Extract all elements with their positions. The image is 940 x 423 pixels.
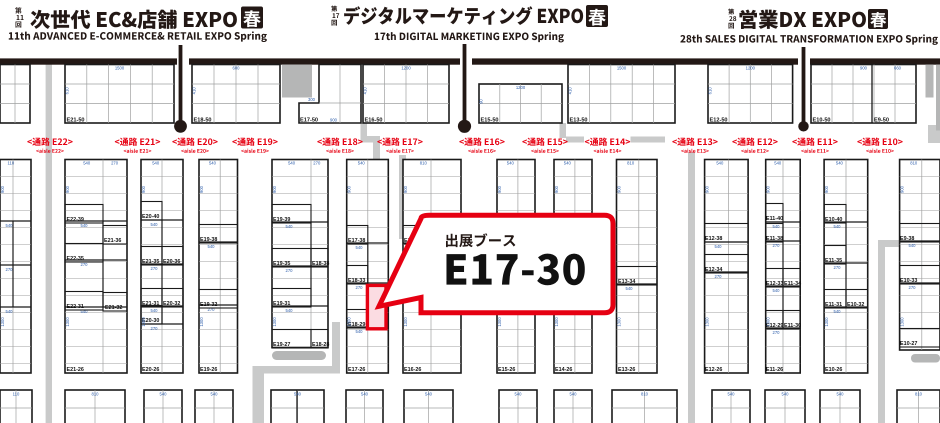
svg-text:540: 540 <box>834 309 842 314</box>
svg-text:900: 900 <box>497 185 502 193</box>
svg-text:540: 540 <box>208 244 216 249</box>
svg-text:E18-50: E18-50 <box>194 118 212 124</box>
svg-text:E11-38: E11-38 <box>766 236 783 242</box>
svg-text:E11-34: E11-34 <box>784 281 801 287</box>
svg-text:E21-31: E21-31 <box>142 301 159 307</box>
svg-text:900: 900 <box>705 185 710 193</box>
svg-text:540: 540 <box>288 161 296 166</box>
svg-text:1200: 1200 <box>746 66 756 71</box>
svg-text:270: 270 <box>773 330 781 335</box>
svg-text:540: 540 <box>209 161 217 166</box>
svg-text:900: 900 <box>900 185 905 193</box>
svg-text:1300: 1300 <box>900 317 905 327</box>
svg-text:1200: 1200 <box>401 66 411 71</box>
svg-text:1300: 1300 <box>824 317 829 327</box>
svg-text:E13-34: E13-34 <box>618 279 635 285</box>
svg-text:E21-35: E21-35 <box>142 259 159 265</box>
svg-text:E20-40: E20-40 <box>142 214 159 220</box>
svg-text:900: 900 <box>347 185 352 193</box>
svg-text:E22-39: E22-39 <box>67 217 84 223</box>
svg-text:900: 900 <box>860 66 868 71</box>
svg-text:270: 270 <box>834 265 842 270</box>
svg-text:900: 900 <box>330 118 338 123</box>
svg-text:540: 540 <box>715 244 723 249</box>
svg-text:E19-32: E19-32 <box>200 302 217 308</box>
svg-text:E11-35: E11-35 <box>825 258 842 264</box>
svg-text:1300: 1300 <box>617 317 622 327</box>
svg-text:600: 600 <box>233 66 241 71</box>
svg-text:410: 410 <box>363 87 368 95</box>
svg-text:E10-27: E10-27 <box>900 341 917 347</box>
svg-text:E21-32: E21-32 <box>105 305 122 311</box>
svg-text:E19-38: E19-38 <box>200 237 217 243</box>
svg-text:540: 540 <box>151 308 159 313</box>
svg-text:E18-38: E18-38 <box>312 261 329 267</box>
svg-text:110: 110 <box>13 392 20 397</box>
svg-text:610: 610 <box>708 87 713 95</box>
svg-text:1300: 1300 <box>497 317 502 327</box>
svg-text:E20-32: E20-32 <box>163 301 180 307</box>
svg-text:540: 540 <box>782 392 790 397</box>
svg-text:540: 540 <box>286 224 294 229</box>
svg-text:1300: 1300 <box>0 317 5 327</box>
svg-text:270: 270 <box>151 266 159 271</box>
svg-text:E9-38: E9-38 <box>900 236 914 242</box>
svg-text:270: 270 <box>81 262 89 267</box>
svg-text:540: 540 <box>425 392 433 397</box>
svg-text:810: 810 <box>420 161 428 166</box>
svg-text:1300: 1300 <box>199 317 204 327</box>
svg-text:E20-36: E20-36 <box>163 259 180 265</box>
svg-text:110: 110 <box>8 161 15 166</box>
svg-text:540: 540 <box>6 309 14 314</box>
svg-text:540: 540 <box>515 392 523 397</box>
svg-text:540: 540 <box>836 161 844 166</box>
svg-text:E10-33: E10-33 <box>900 278 917 284</box>
svg-text:410: 410 <box>568 87 573 95</box>
svg-text:E19-39: E19-39 <box>273 217 290 223</box>
svg-text:1300: 1300 <box>554 317 559 327</box>
svg-text:E21-26: E21-26 <box>67 367 84 373</box>
svg-text:270: 270 <box>909 285 917 290</box>
svg-text:540: 540 <box>626 286 634 291</box>
svg-text:1200: 1200 <box>516 85 526 90</box>
svg-text:540: 540 <box>160 392 168 397</box>
svg-text:E10-40: E10-40 <box>825 217 842 223</box>
svg-text:540: 540 <box>773 224 781 229</box>
svg-text:E17-26: E17-26 <box>348 367 365 373</box>
svg-text:E21-36: E21-36 <box>104 238 121 244</box>
svg-text:540: 540 <box>728 392 736 397</box>
svg-text:540: 540 <box>6 223 14 228</box>
svg-text:E19-35: E19-35 <box>273 261 290 267</box>
svg-text:270: 270 <box>313 161 321 166</box>
svg-text:90: 90 <box>479 99 484 104</box>
svg-text:540: 540 <box>361 392 369 397</box>
svg-text:900: 900 <box>617 185 622 193</box>
svg-text:E22-35: E22-35 <box>67 256 84 262</box>
svg-text:900: 900 <box>272 185 277 193</box>
svg-text:E19-31: E19-31 <box>273 301 290 307</box>
svg-text:900: 900 <box>824 185 829 193</box>
svg-text:E11-30: E11-30 <box>784 323 801 329</box>
svg-text:1300: 1300 <box>705 317 710 327</box>
svg-text:E11-26: E11-26 <box>766 367 783 373</box>
svg-text:900: 900 <box>0 185 5 193</box>
svg-text:E16-50: E16-50 <box>365 118 383 124</box>
svg-text:900: 900 <box>199 185 204 193</box>
svg-text:E13-26: E13-26 <box>618 367 635 373</box>
svg-text:270: 270 <box>151 326 159 331</box>
svg-text:E18-28: E18-28 <box>312 342 329 348</box>
svg-text:E10-32: E10-32 <box>847 302 864 308</box>
svg-text:E10-50: E10-50 <box>813 118 831 124</box>
svg-text:E11-31: E11-31 <box>825 302 842 308</box>
svg-text:E15-26: E15-26 <box>498 367 515 373</box>
svg-text:900: 900 <box>65 185 70 193</box>
svg-text:540: 540 <box>356 245 364 250</box>
svg-text:540: 540 <box>358 161 366 166</box>
svg-text:270: 270 <box>773 243 781 248</box>
svg-text:E10-26: E10-26 <box>825 367 842 373</box>
svg-text:270: 270 <box>715 274 723 279</box>
svg-text:1500: 1500 <box>617 66 627 71</box>
svg-text:540: 540 <box>81 223 89 228</box>
svg-text:E12-26: E12-26 <box>705 367 722 373</box>
svg-text:810: 810 <box>915 392 923 397</box>
svg-text:540: 540 <box>83 161 91 166</box>
svg-text:E12-50: E12-50 <box>710 118 728 124</box>
svg-text:540: 540 <box>294 392 302 397</box>
svg-text:540: 540 <box>834 224 842 229</box>
svg-text:270: 270 <box>286 268 294 273</box>
svg-text:540: 540 <box>211 392 219 397</box>
svg-text:E13-50: E13-50 <box>570 118 588 124</box>
svg-text:270: 270 <box>6 267 14 272</box>
svg-text:E15-50: E15-50 <box>481 118 499 124</box>
svg-text:E12-38: E12-38 <box>705 236 722 242</box>
svg-text:540: 540 <box>774 161 782 166</box>
svg-text:E12-34: E12-34 <box>705 267 722 273</box>
svg-text:E19-27: E19-27 <box>273 342 290 348</box>
svg-text:1300: 1300 <box>65 317 70 327</box>
svg-text:660: 660 <box>894 66 902 71</box>
svg-text:540: 540 <box>286 308 294 313</box>
svg-text:810: 810 <box>92 392 100 397</box>
svg-text:270: 270 <box>111 161 119 166</box>
svg-text:410: 410 <box>192 87 197 95</box>
svg-text:E20-26: E20-26 <box>142 367 159 373</box>
svg-text:540: 540 <box>570 392 578 397</box>
svg-text:E12-33: E12-33 <box>766 281 783 287</box>
svg-text:900: 900 <box>141 185 146 193</box>
svg-text:900: 900 <box>766 185 771 193</box>
svg-text:E16-26: E16-26 <box>404 367 421 373</box>
svg-text:540: 540 <box>564 161 572 166</box>
svg-text:810: 810 <box>910 161 918 166</box>
svg-text:E17-50: E17-50 <box>300 118 318 124</box>
svg-text:E18-33: E18-33 <box>348 278 365 284</box>
svg-text:540: 540 <box>151 222 159 227</box>
svg-text:E11-40: E11-40 <box>766 216 783 222</box>
svg-text:610: 610 <box>65 87 70 95</box>
svg-text:1300: 1300 <box>347 317 352 327</box>
svg-text:540: 540 <box>152 161 160 166</box>
svg-text:E14-26: E14-26 <box>555 367 572 373</box>
svg-text:540: 540 <box>716 161 724 166</box>
svg-text:1500: 1500 <box>115 66 125 71</box>
svg-text:E19-26: E19-26 <box>200 367 217 373</box>
svg-text:270: 270 <box>356 285 364 290</box>
svg-text:540: 540 <box>773 288 781 293</box>
svg-text:540: 540 <box>909 243 917 248</box>
svg-text:E9-50: E9-50 <box>874 118 889 124</box>
svg-text:E22-31: E22-31 <box>67 304 84 310</box>
svg-text:540: 540 <box>837 392 845 397</box>
svg-text:1300: 1300 <box>141 317 146 327</box>
svg-text:E21-50: E21-50 <box>67 118 85 124</box>
svg-text:900: 900 <box>403 185 408 193</box>
svg-text:810: 810 <box>627 161 635 166</box>
svg-text:1300: 1300 <box>403 317 408 327</box>
svg-text:1300: 1300 <box>272 317 277 327</box>
svg-text:300: 300 <box>308 97 316 102</box>
svg-text:E17-38: E17-38 <box>348 238 365 244</box>
svg-text:810: 810 <box>641 392 649 397</box>
svg-text:1300: 1300 <box>766 317 771 327</box>
svg-text:540: 540 <box>356 329 364 334</box>
svg-text:900: 900 <box>554 185 559 193</box>
svg-text:540: 540 <box>507 161 515 166</box>
